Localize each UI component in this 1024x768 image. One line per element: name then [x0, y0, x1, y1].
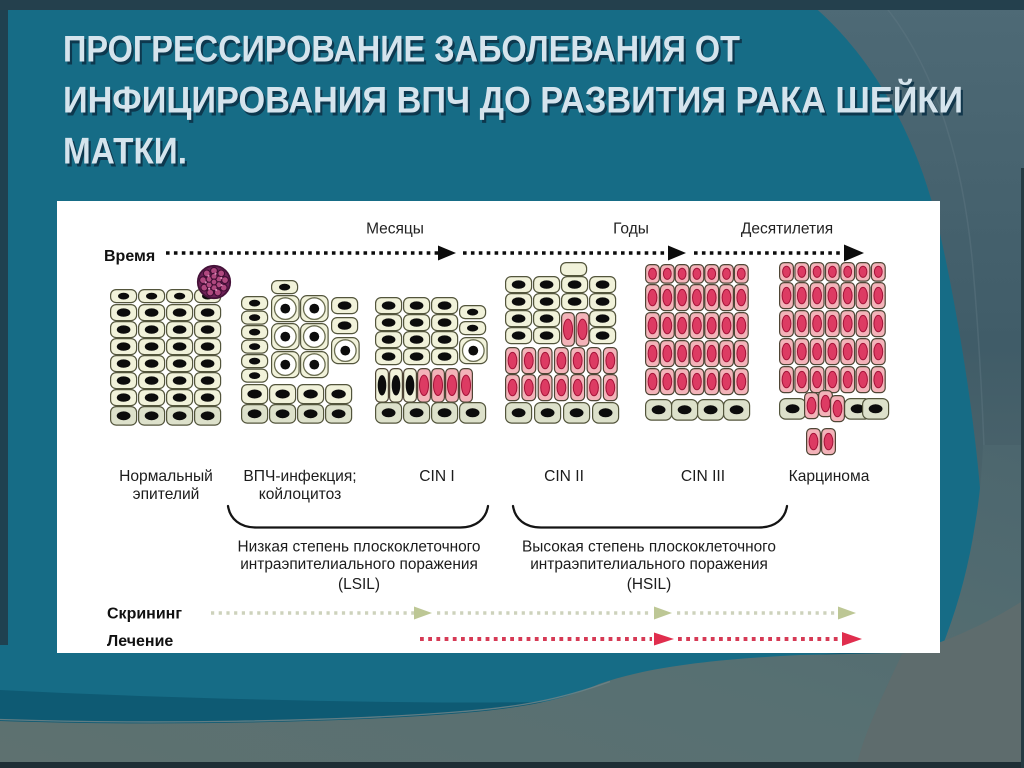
- svg-text:ПРОГРЕССИРОВАНИЕ ЗАБОЛЕВАНИЯ О: ПРОГРЕССИРОВАНИЕ ЗАБОЛЕВАНИЯ ОТ: [63, 28, 740, 70]
- svg-text:Высокая степень плоскоклеточно: Высокая степень плоскоклеточного: [522, 539, 776, 556]
- svg-text:Годы: Годы: [613, 221, 649, 238]
- svg-text:(LSIL): (LSIL): [338, 576, 380, 593]
- svg-text:интраэпителиального поражения: интраэпителиального поражения: [530, 556, 768, 573]
- svg-text:эпителий: эпителий: [133, 486, 200, 503]
- svg-text:Лечение: Лечение: [107, 633, 173, 650]
- svg-text:Время: Время: [104, 248, 155, 265]
- svg-text:койлоцитоз: койлоцитоз: [259, 486, 342, 503]
- svg-text:Нормальный: Нормальный: [119, 468, 213, 485]
- svg-text:ВПЧ-инфекция;: ВПЧ-инфекция;: [243, 468, 356, 485]
- svg-text:ИНФИЦИРОВАНИЯ ВПЧ ДО РАЗВИТИЯ: ИНФИЦИРОВАНИЯ ВПЧ ДО РАЗВИТИЯ РАКА ШЕЙКИ: [63, 79, 963, 121]
- svg-text:МАТКИ.: МАТКИ.: [63, 130, 187, 172]
- svg-text:CIN II: CIN II: [544, 468, 584, 485]
- svg-text:Низкая степень плоскоклеточног: Низкая степень плоскоклеточного: [238, 539, 481, 556]
- svg-text:CIN I: CIN I: [419, 468, 455, 485]
- svg-text:интраэпителиального поражения: интраэпителиального поражения: [240, 556, 478, 573]
- svg-text:(HSIL): (HSIL): [627, 576, 671, 593]
- svg-text:CIN III: CIN III: [681, 468, 725, 485]
- svg-text:Десятилетия: Десятилетия: [741, 221, 833, 238]
- svg-text:Месяцы: Месяцы: [366, 221, 424, 238]
- svg-text:Карцинома: Карцинома: [789, 468, 870, 485]
- svg-text:Скрининг: Скрининг: [107, 606, 182, 623]
